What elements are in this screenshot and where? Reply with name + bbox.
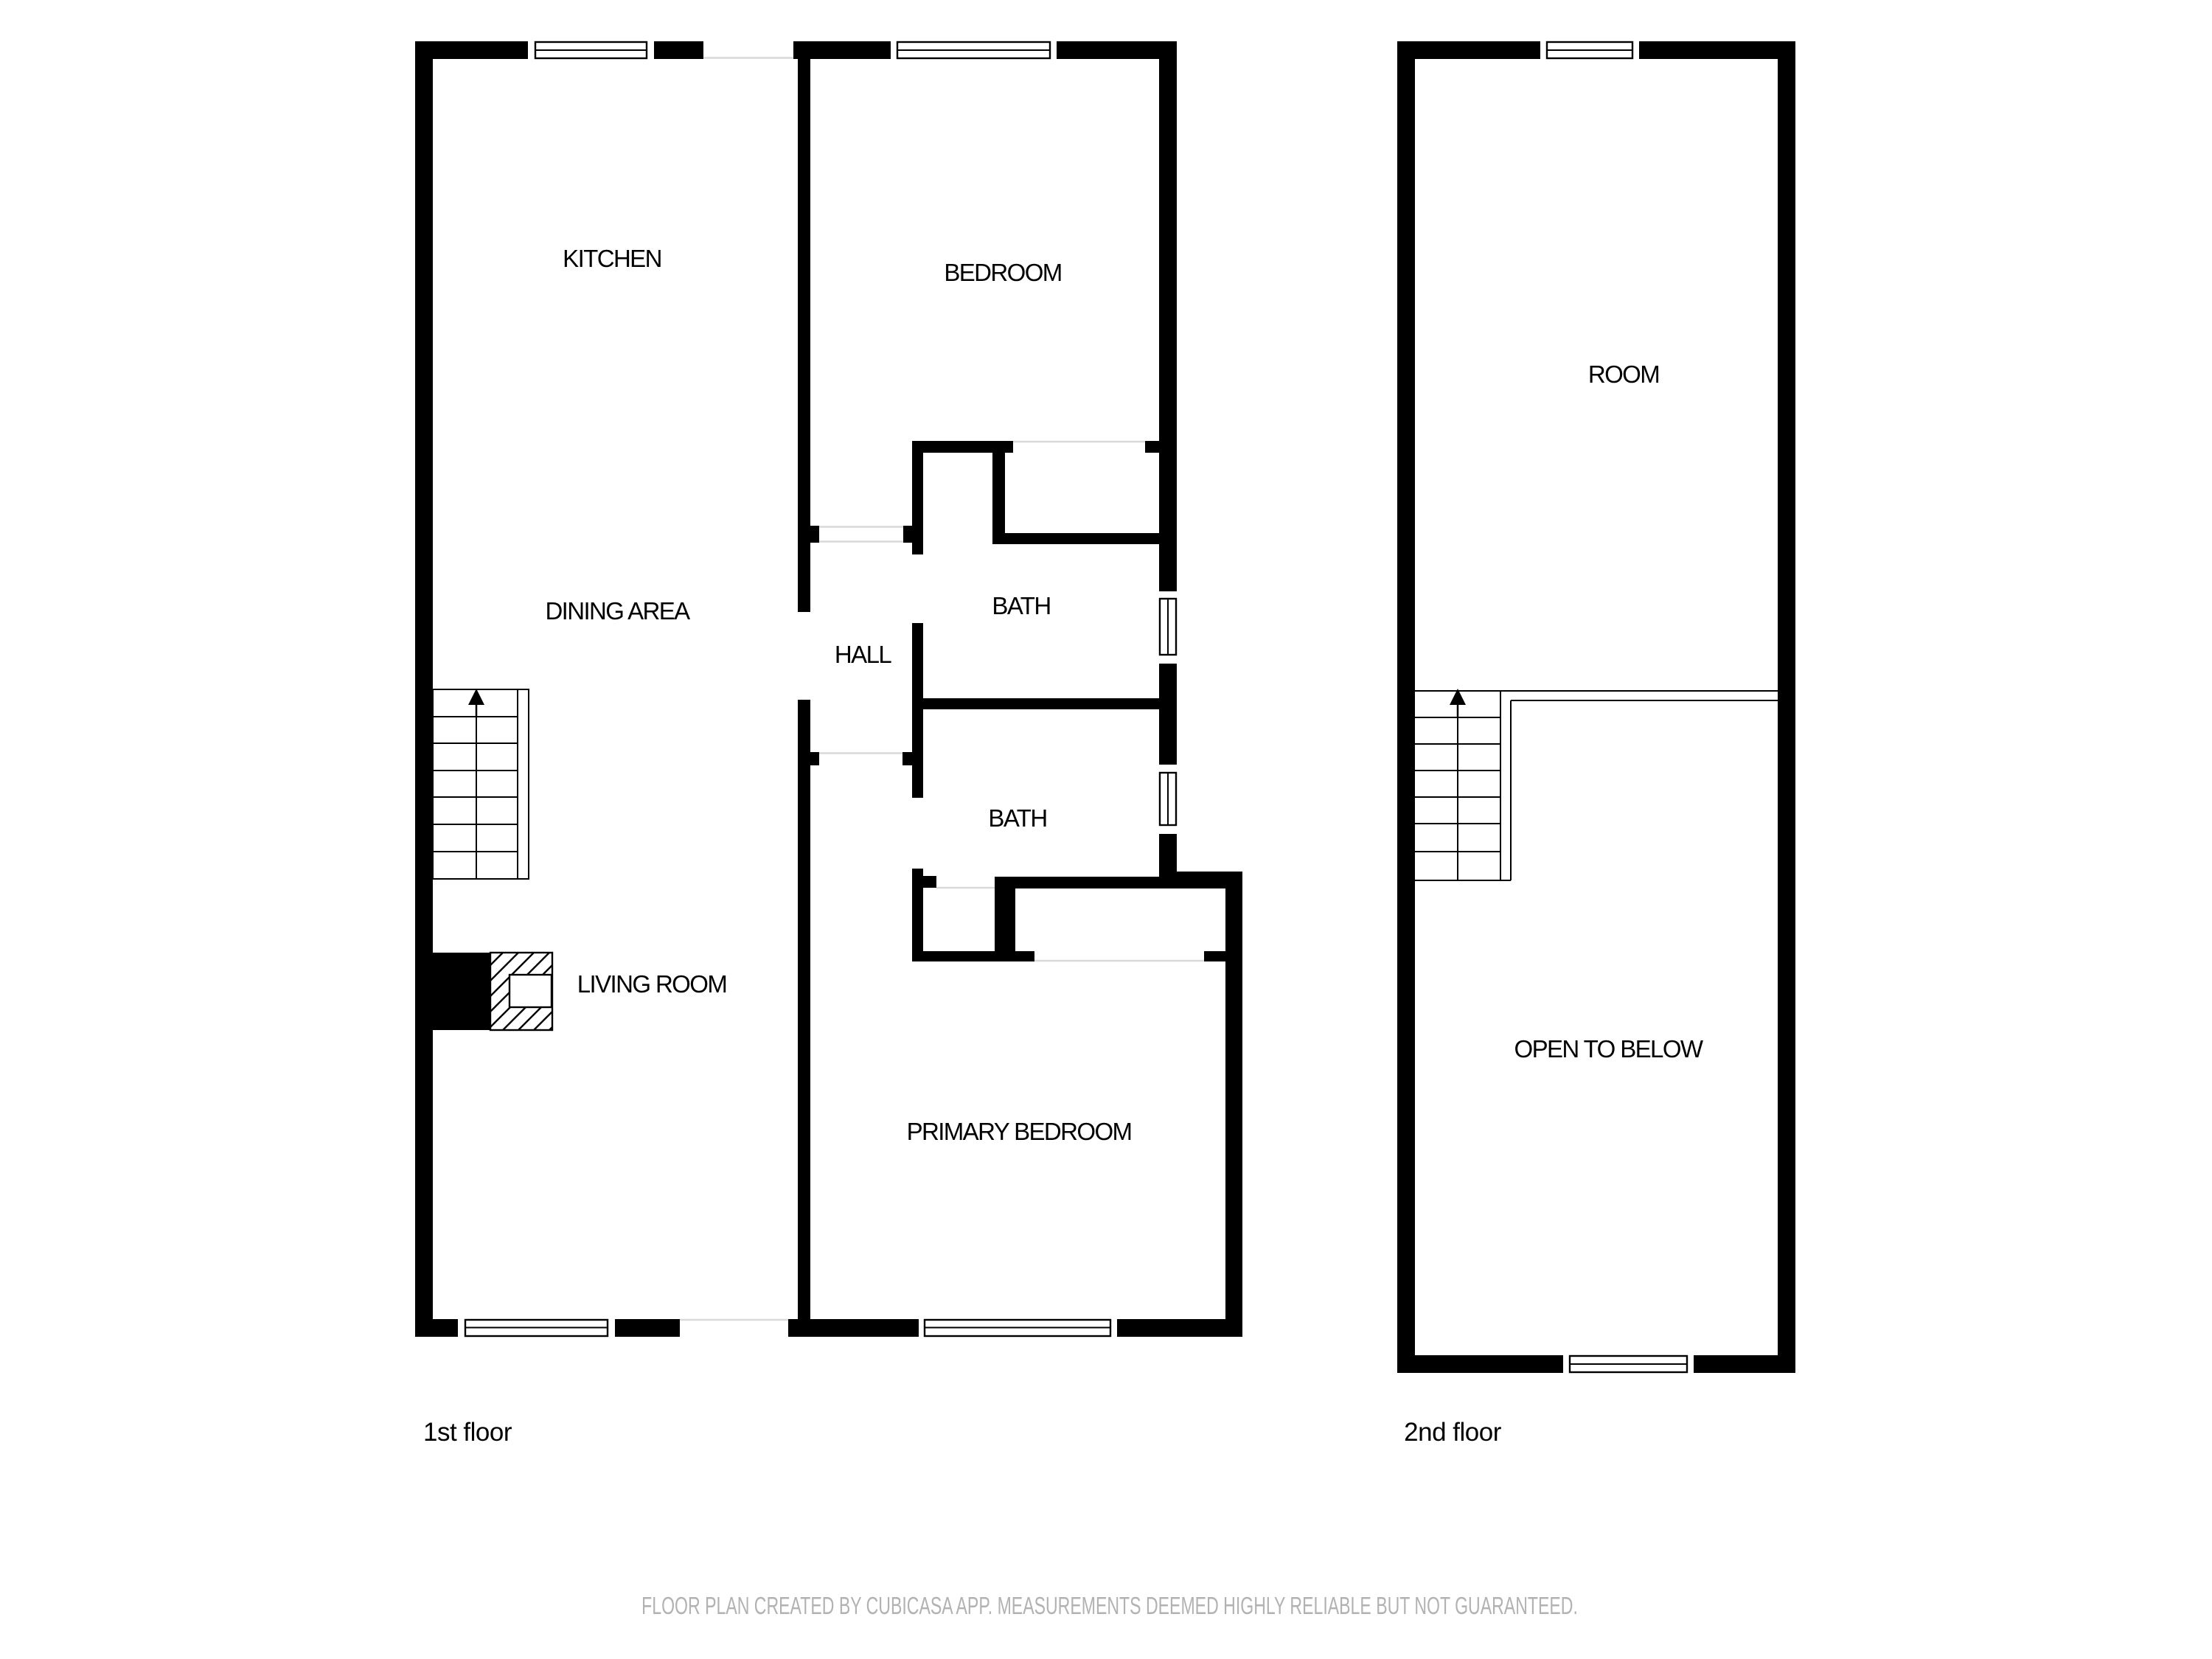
svg-text:BATH: BATH bbox=[988, 804, 1046, 832]
svg-text:KITCHEN: KITCHEN bbox=[563, 245, 661, 272]
svg-text:DINING AREA: DINING AREA bbox=[545, 597, 690, 625]
svg-text:HALL: HALL bbox=[835, 641, 891, 668]
svg-text:2nd floor: 2nd floor bbox=[1404, 1418, 1502, 1447]
svg-text:OPEN TO BELOW: OPEN TO BELOW bbox=[1514, 1035, 1704, 1062]
svg-text:PRIMARY BEDROOM: PRIMARY BEDROOM bbox=[907, 1118, 1132, 1145]
svg-text:ROOM: ROOM bbox=[1588, 361, 1659, 388]
svg-text:FLOOR PLAN CREATED BY CUBICASA: FLOOR PLAN CREATED BY CUBICASA APP. MEAS… bbox=[641, 1593, 1578, 1620]
svg-text:1st floor: 1st floor bbox=[423, 1418, 512, 1447]
svg-text:LIVING ROOM: LIVING ROOM bbox=[577, 970, 726, 998]
svg-text:BEDROOM: BEDROOM bbox=[944, 259, 1061, 286]
svg-text:BATH: BATH bbox=[992, 592, 1050, 619]
